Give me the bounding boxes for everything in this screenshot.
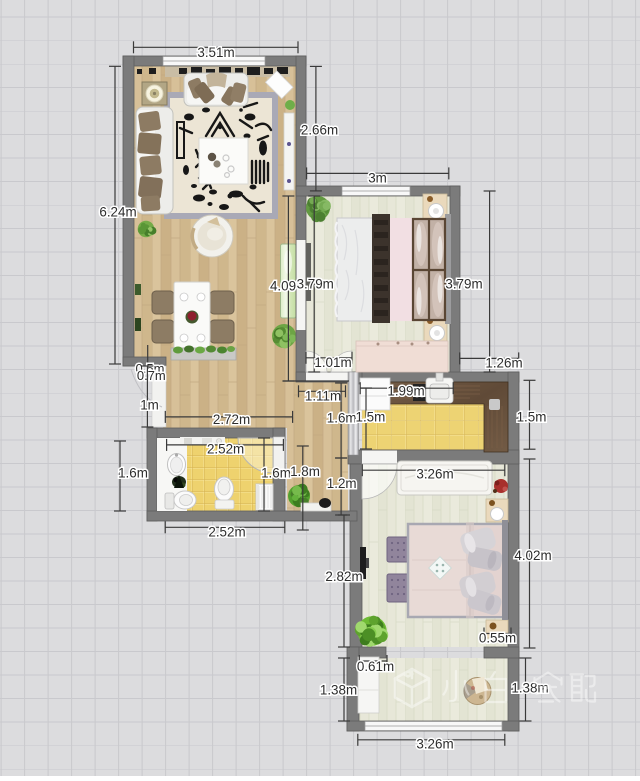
svg-text:1.5m: 1.5m xyxy=(517,409,547,424)
svg-text:1.11m: 1.11m xyxy=(305,388,341,403)
svg-text:6.24m: 6.24m xyxy=(99,205,136,220)
svg-text:3.26m: 3.26m xyxy=(416,466,453,481)
svg-text:4.09: 4.09 xyxy=(270,279,296,294)
svg-text:0.55m: 0.55m xyxy=(479,631,516,646)
svg-text:2.66m: 2.66m xyxy=(301,123,338,138)
svg-text:1.6m: 1.6m xyxy=(327,411,357,426)
svg-text:3.79m: 3.79m xyxy=(445,277,482,292)
svg-text:4.02m: 4.02m xyxy=(514,548,551,563)
svg-text:2.52m: 2.52m xyxy=(208,525,245,540)
svg-text:1m: 1m xyxy=(140,398,159,413)
svg-text:3.79m: 3.79m xyxy=(297,277,334,292)
svg-text:3m: 3m xyxy=(368,171,387,186)
svg-text:1.99m: 1.99m xyxy=(387,383,424,398)
svg-text:2.72m: 2.72m xyxy=(213,412,250,427)
svg-text:2.82m: 2.82m xyxy=(325,569,362,584)
svg-text:0.7m: 0.7m xyxy=(137,368,166,383)
svg-text:0.61m: 0.61m xyxy=(357,659,394,674)
svg-text:3.26m: 3.26m xyxy=(416,736,453,751)
svg-text:1.38m: 1.38m xyxy=(320,683,357,698)
svg-text:3.51m: 3.51m xyxy=(197,45,234,60)
svg-text:1.5m: 1.5m xyxy=(356,410,386,425)
svg-text:2.52m: 2.52m xyxy=(207,441,244,456)
svg-text:1.8m: 1.8m xyxy=(290,464,320,479)
svg-text:1.2m: 1.2m xyxy=(327,476,357,491)
svg-text:1.6m: 1.6m xyxy=(118,466,148,481)
svg-text:1.26m: 1.26m xyxy=(485,355,522,370)
svg-text:1.01m: 1.01m xyxy=(314,355,351,370)
svg-text:1.6m: 1.6m xyxy=(261,466,291,481)
